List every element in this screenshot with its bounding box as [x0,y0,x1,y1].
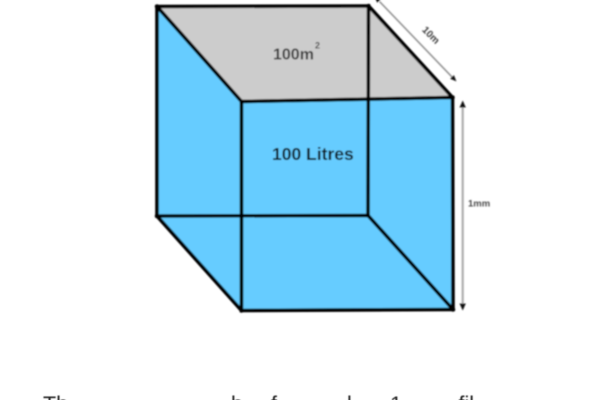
svg-text:1mm: 1mm [468,199,490,210]
svg-text:2: 2 [315,41,320,51]
svg-text:100 Litres: 100 Litres [272,144,354,164]
svg-text:10m: 10m [419,25,441,47]
svg-text:100m: 100m [273,47,314,64]
